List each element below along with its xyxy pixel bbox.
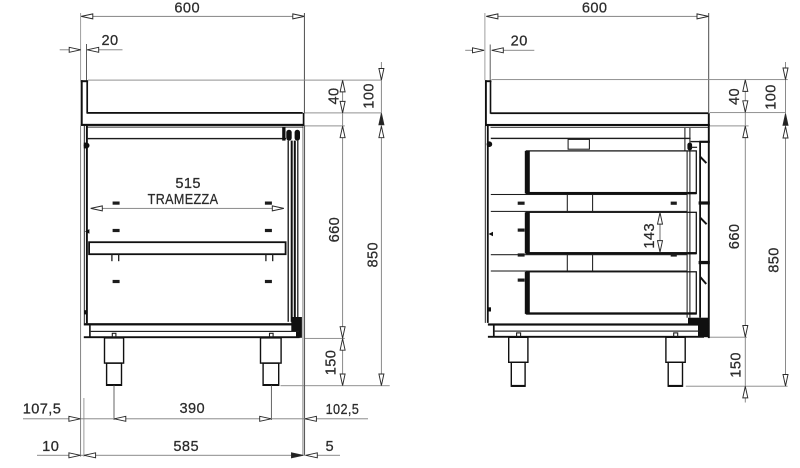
svg-text:660: 660 <box>727 224 743 250</box>
svg-text:850: 850 <box>766 247 782 273</box>
svg-text:150: 150 <box>324 350 340 376</box>
svg-text:390: 390 <box>180 401 206 417</box>
svg-text:107,5: 107,5 <box>23 402 62 418</box>
svg-text:600: 600 <box>174 0 200 16</box>
svg-text:850: 850 <box>365 242 381 268</box>
svg-text:660: 660 <box>327 217 343 243</box>
svg-text:5: 5 <box>326 439 335 455</box>
svg-text:20: 20 <box>511 34 528 50</box>
svg-text:TRAMEZZA: TRAMEZZA <box>148 192 219 208</box>
svg-text:143: 143 <box>642 223 658 249</box>
svg-text:20: 20 <box>101 33 118 49</box>
svg-text:10: 10 <box>42 439 59 455</box>
svg-text:100: 100 <box>362 83 378 109</box>
svg-text:40: 40 <box>326 87 342 104</box>
svg-text:515: 515 <box>175 176 201 192</box>
svg-text:102,5: 102,5 <box>326 402 360 418</box>
svg-text:150: 150 <box>729 352 745 378</box>
svg-text:100: 100 <box>764 84 780 110</box>
svg-text:40: 40 <box>727 88 743 105</box>
svg-text:585: 585 <box>173 439 199 455</box>
svg-text:600: 600 <box>582 1 608 17</box>
